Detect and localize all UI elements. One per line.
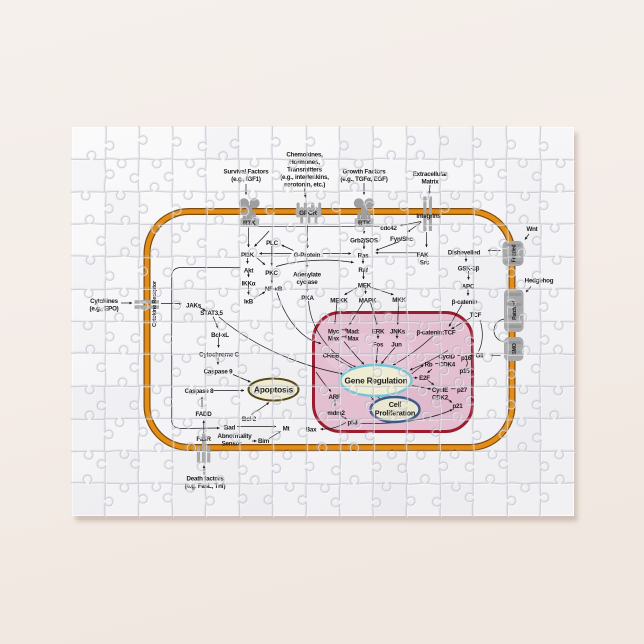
svg-text:p27: p27 <box>457 387 468 394</box>
svg-text:Bim: Bim <box>258 438 270 445</box>
svg-text:p21: p21 <box>452 403 463 410</box>
svg-text:IKKα: IKKα <box>242 281 256 288</box>
svg-text:Fos: Fos <box>373 342 384 349</box>
svg-text:Matrix: Matrix <box>421 179 439 186</box>
svg-text:STAT3,5: STAT3,5 <box>200 310 223 317</box>
svg-text:Max: Max <box>347 337 359 343</box>
svg-text:p16: p16 <box>461 355 472 362</box>
svg-text:Integrins: Integrins <box>416 213 441 220</box>
svg-text:JAKs: JAKs <box>186 303 202 310</box>
svg-text:Mad:: Mad: <box>346 330 359 336</box>
svg-text:Jun: Jun <box>391 342 402 349</box>
svg-text:Akt: Akt <box>244 268 254 275</box>
svg-text:mdm2: mdm2 <box>327 410 345 417</box>
svg-text:E2F: E2F <box>419 375 430 382</box>
svg-text:IκB: IκB <box>244 299 254 306</box>
svg-text:JNKs: JNKs <box>390 329 406 336</box>
svg-text:Wnt: Wnt <box>526 226 537 233</box>
svg-text:Mt: Mt <box>283 426 290 433</box>
svg-text:TCF: TCF <box>470 312 482 319</box>
svg-text:Bcl-xL: Bcl-xL <box>211 332 229 339</box>
svg-text:Rb: Rb <box>425 362 433 369</box>
